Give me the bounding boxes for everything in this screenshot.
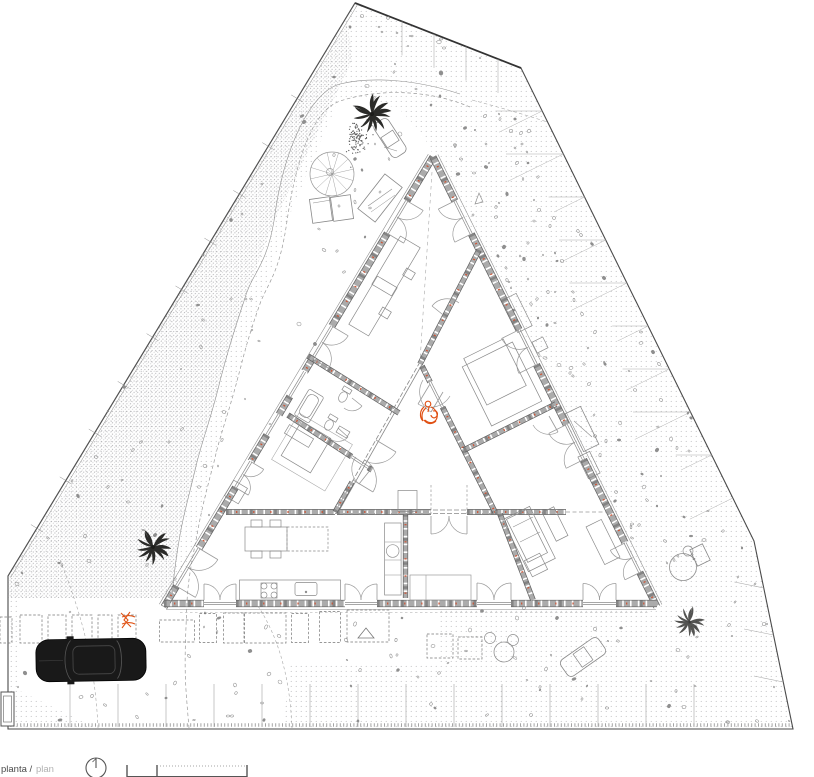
svg-text:plan: plan [36,764,54,775]
svg-text:planta /: planta / [1,764,33,775]
